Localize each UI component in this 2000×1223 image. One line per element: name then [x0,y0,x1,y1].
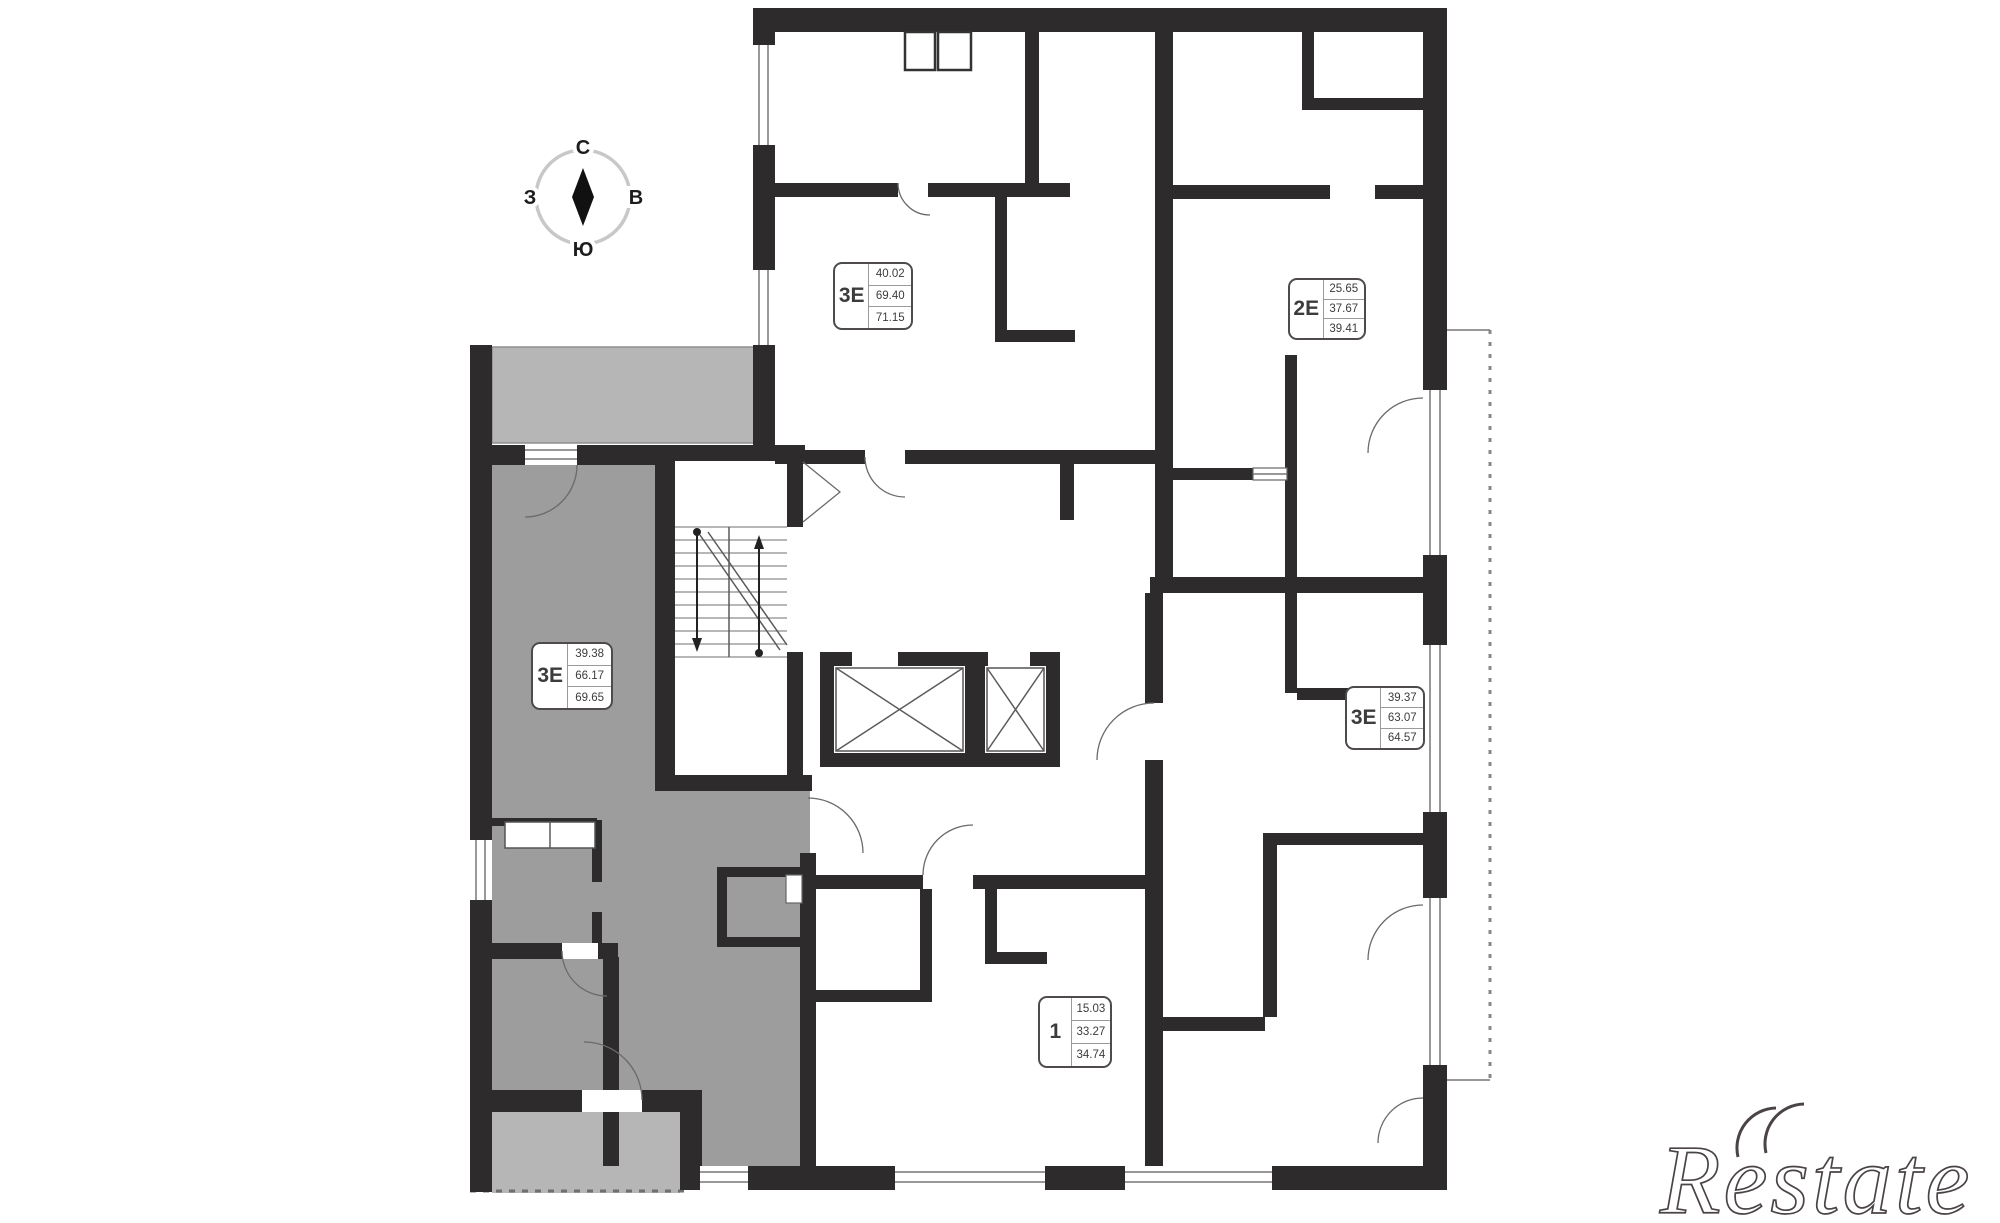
area-upper: 40.02 [869,264,911,286]
area-upper: 39.37 [1381,688,1423,708]
area-total: 34.74 [1072,1044,1110,1066]
compass: С Ю З В [524,137,643,261]
area-total: 69.65 [568,687,611,708]
compass-needle [572,168,594,226]
floor-plan-page: С Ю З В Restate 3Е 40.02 69.40 71.15 2Е … [0,0,2000,1223]
area-living: 33.27 [1072,1021,1110,1044]
area-living: 63.07 [1381,708,1423,728]
staircase [675,527,787,657]
watermark: Restate [1659,1104,1972,1223]
apartment-badge-top-right[interactable]: 2Е 25.65 37.67 39.41 [1288,278,1366,340]
watermark-text: Restate [1659,1126,1972,1223]
compass-north-label: С [576,137,590,159]
kitchen-counter [505,822,595,848]
bottom-balcony [470,1112,690,1193]
area-upper: 25.65 [1324,280,1364,300]
apartment-badge-right-middle[interactable]: 3Е 39.37 63.07 64.57 [1345,686,1425,750]
apartment-type-label: 1 [1040,998,1071,1066]
compass-west-label: З [524,187,537,209]
area-living: 37.67 [1324,300,1364,320]
apartment-badge-selected[interactable]: 3Е 39.38 66.17 69.65 [531,642,613,710]
area-living: 69.40 [869,286,911,308]
bath-fixture [786,875,802,903]
right-balcony-strip [1447,330,1490,1080]
floor-plan-svg: С Ю З В Restate [0,0,2000,1223]
area-upper: 15.03 [1072,998,1110,1021]
area-upper: 39.38 [568,644,611,666]
area-total: 71.15 [869,307,911,328]
area-living: 66.17 [568,666,611,688]
vent-shafts [905,32,971,70]
compass-south-label: Ю [573,239,594,261]
terrace [492,347,755,443]
apartment-badge-bottom-center[interactable]: 1 15.03 33.27 34.74 [1038,996,1112,1068]
apartment-type-label: 3Е [1347,688,1380,748]
elevator-shafts [836,668,1044,751]
apartment-type-label: 3Е [835,264,868,328]
area-total: 39.41 [1324,319,1364,338]
apartment-badge-top-left[interactable]: 3Е 40.02 69.40 71.15 [833,262,913,330]
compass-east-label: В [629,187,643,209]
apartment-type-label: 3Е [533,644,567,708]
apartment-type-label: 2Е [1290,280,1323,338]
area-total: 64.57 [1381,729,1423,748]
